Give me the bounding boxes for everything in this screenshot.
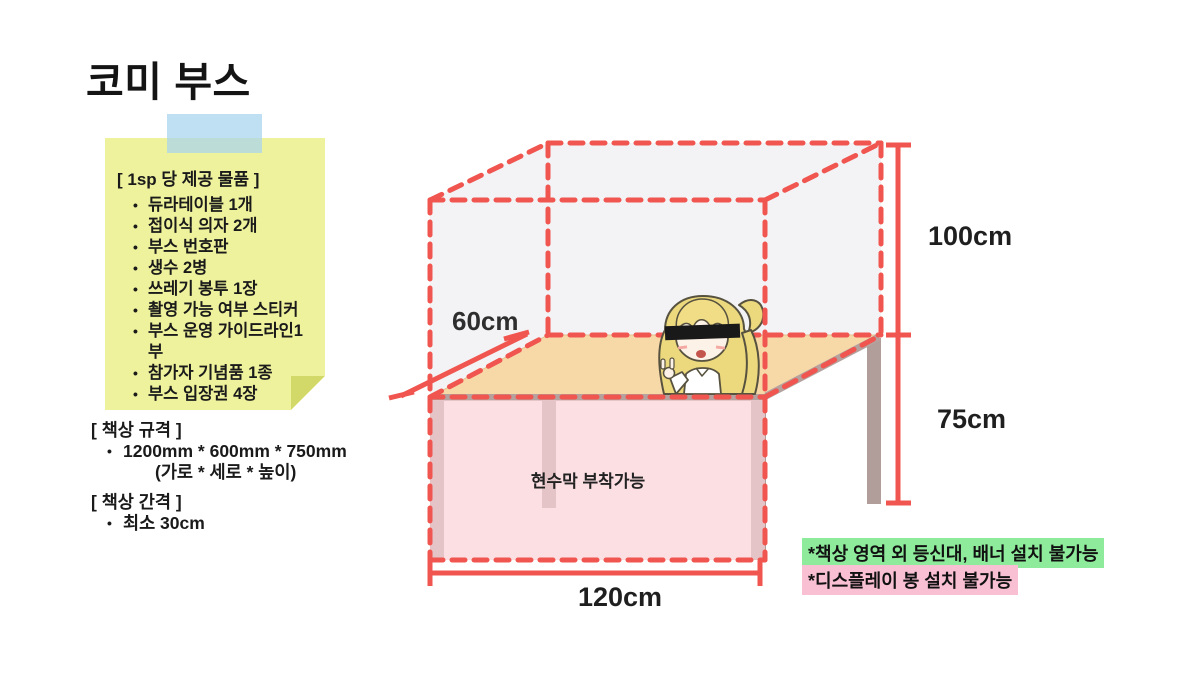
- character-illustration: [659, 296, 763, 394]
- table-leg-back-right: [867, 338, 881, 504]
- dim-label-60cm: 60cm: [452, 306, 519, 337]
- character-shirt: [684, 368, 721, 394]
- dim-label-120cm: 120cm: [572, 582, 668, 613]
- restriction-note-green: *책상 영역 외 등신대, 배너 설치 불가능: [802, 538, 1104, 568]
- tape-strip: [167, 114, 262, 153]
- dim-line-100cm: [886, 145, 911, 335]
- booth-diagram-svg: [0, 0, 1200, 675]
- character-finger-1: [661, 359, 665, 369]
- page-root: 코미 부스 [ 1sp 당 제공 물품 ] 듀라테이블 1개 접이식 의자 2개…: [0, 0, 1200, 675]
- restriction-note-pink: *디스플레이 봉 설치 불가능: [802, 565, 1018, 595]
- dim-label-100cm: 100cm: [928, 221, 1012, 252]
- character-finger-2: [670, 358, 674, 369]
- character-mouth: [696, 350, 706, 358]
- dim-label-75cm: 75cm: [937, 404, 1006, 435]
- dim-line-75cm: [886, 335, 911, 503]
- character-censor-bar: [665, 324, 740, 341]
- banner-area-label: 현수막 부착가능: [512, 467, 664, 492]
